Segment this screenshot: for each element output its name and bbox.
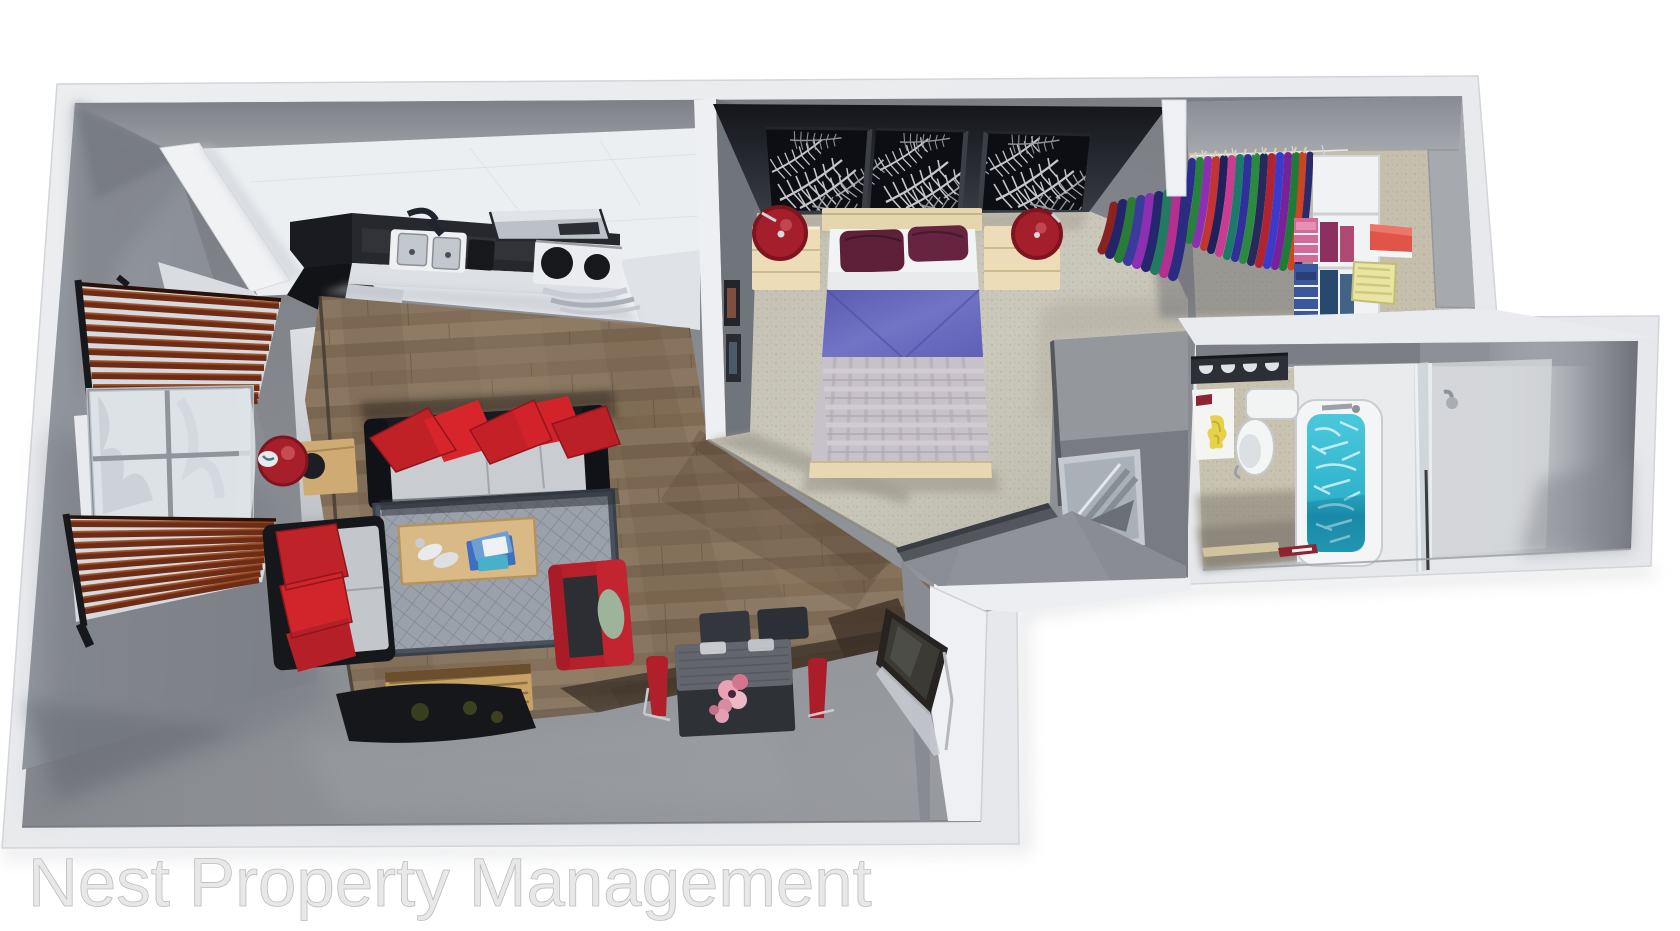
svg-text:Nest Property Management: Nest Property Management [28, 844, 872, 921]
